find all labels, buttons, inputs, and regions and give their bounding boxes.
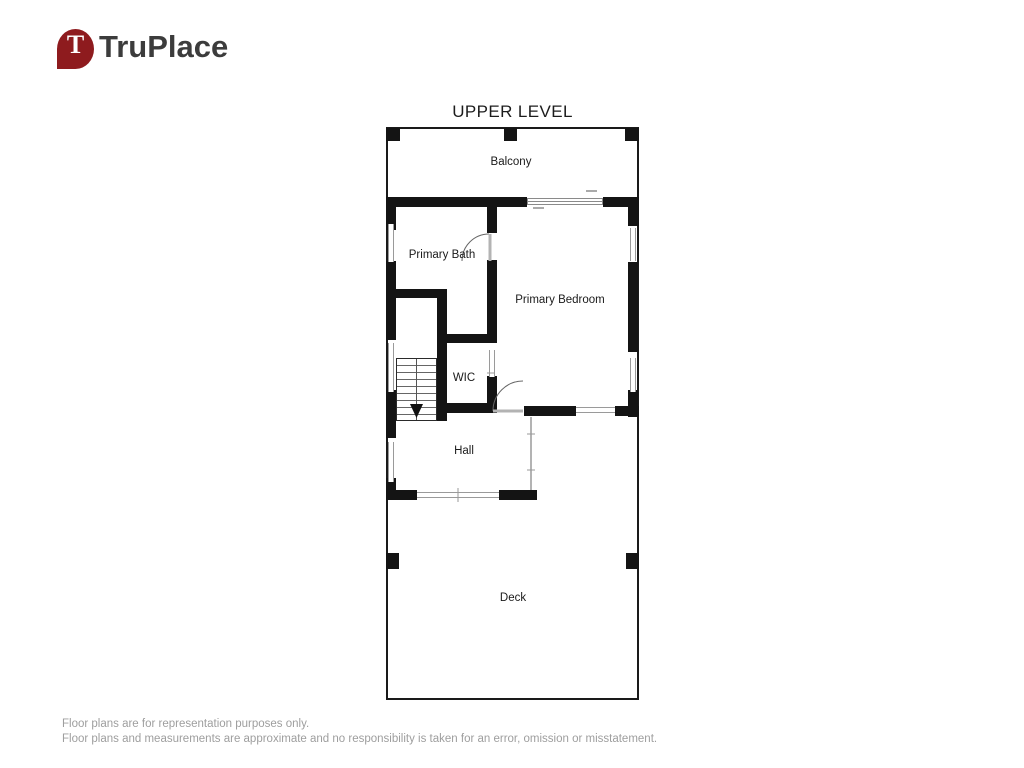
pin-letter: T [57, 30, 94, 60]
door-arc [493, 381, 523, 411]
room-label-primary-bath: Primary Bath [386, 248, 498, 262]
disclaimer-line-1: Floor plans are for representation purpo… [62, 717, 962, 732]
truplace-logo: T TruPlace [57, 27, 317, 77]
room-label-hall: Hall [424, 444, 504, 458]
room-label-deck: Deck [443, 591, 583, 605]
floor-plan: Balcony Primary Bath Primary Bedroom WIC… [386, 127, 639, 700]
floor-plan-title: UPPER LEVEL [386, 102, 639, 122]
door-swings-overlay [386, 127, 639, 700]
disclaimer-line-2: Floor plans and measurements are approxi… [62, 732, 962, 747]
map-pin-icon: T [57, 29, 94, 69]
room-label-primary-bedroom: Primary Bedroom [490, 293, 630, 307]
brand-name: TruPlace [99, 29, 228, 65]
room-label-balcony: Balcony [441, 155, 581, 169]
stair-down-arrow-icon [410, 404, 423, 418]
disclaimer: Floor plans are for representation purpo… [62, 717, 962, 747]
room-label-wic: WIC [434, 371, 494, 385]
